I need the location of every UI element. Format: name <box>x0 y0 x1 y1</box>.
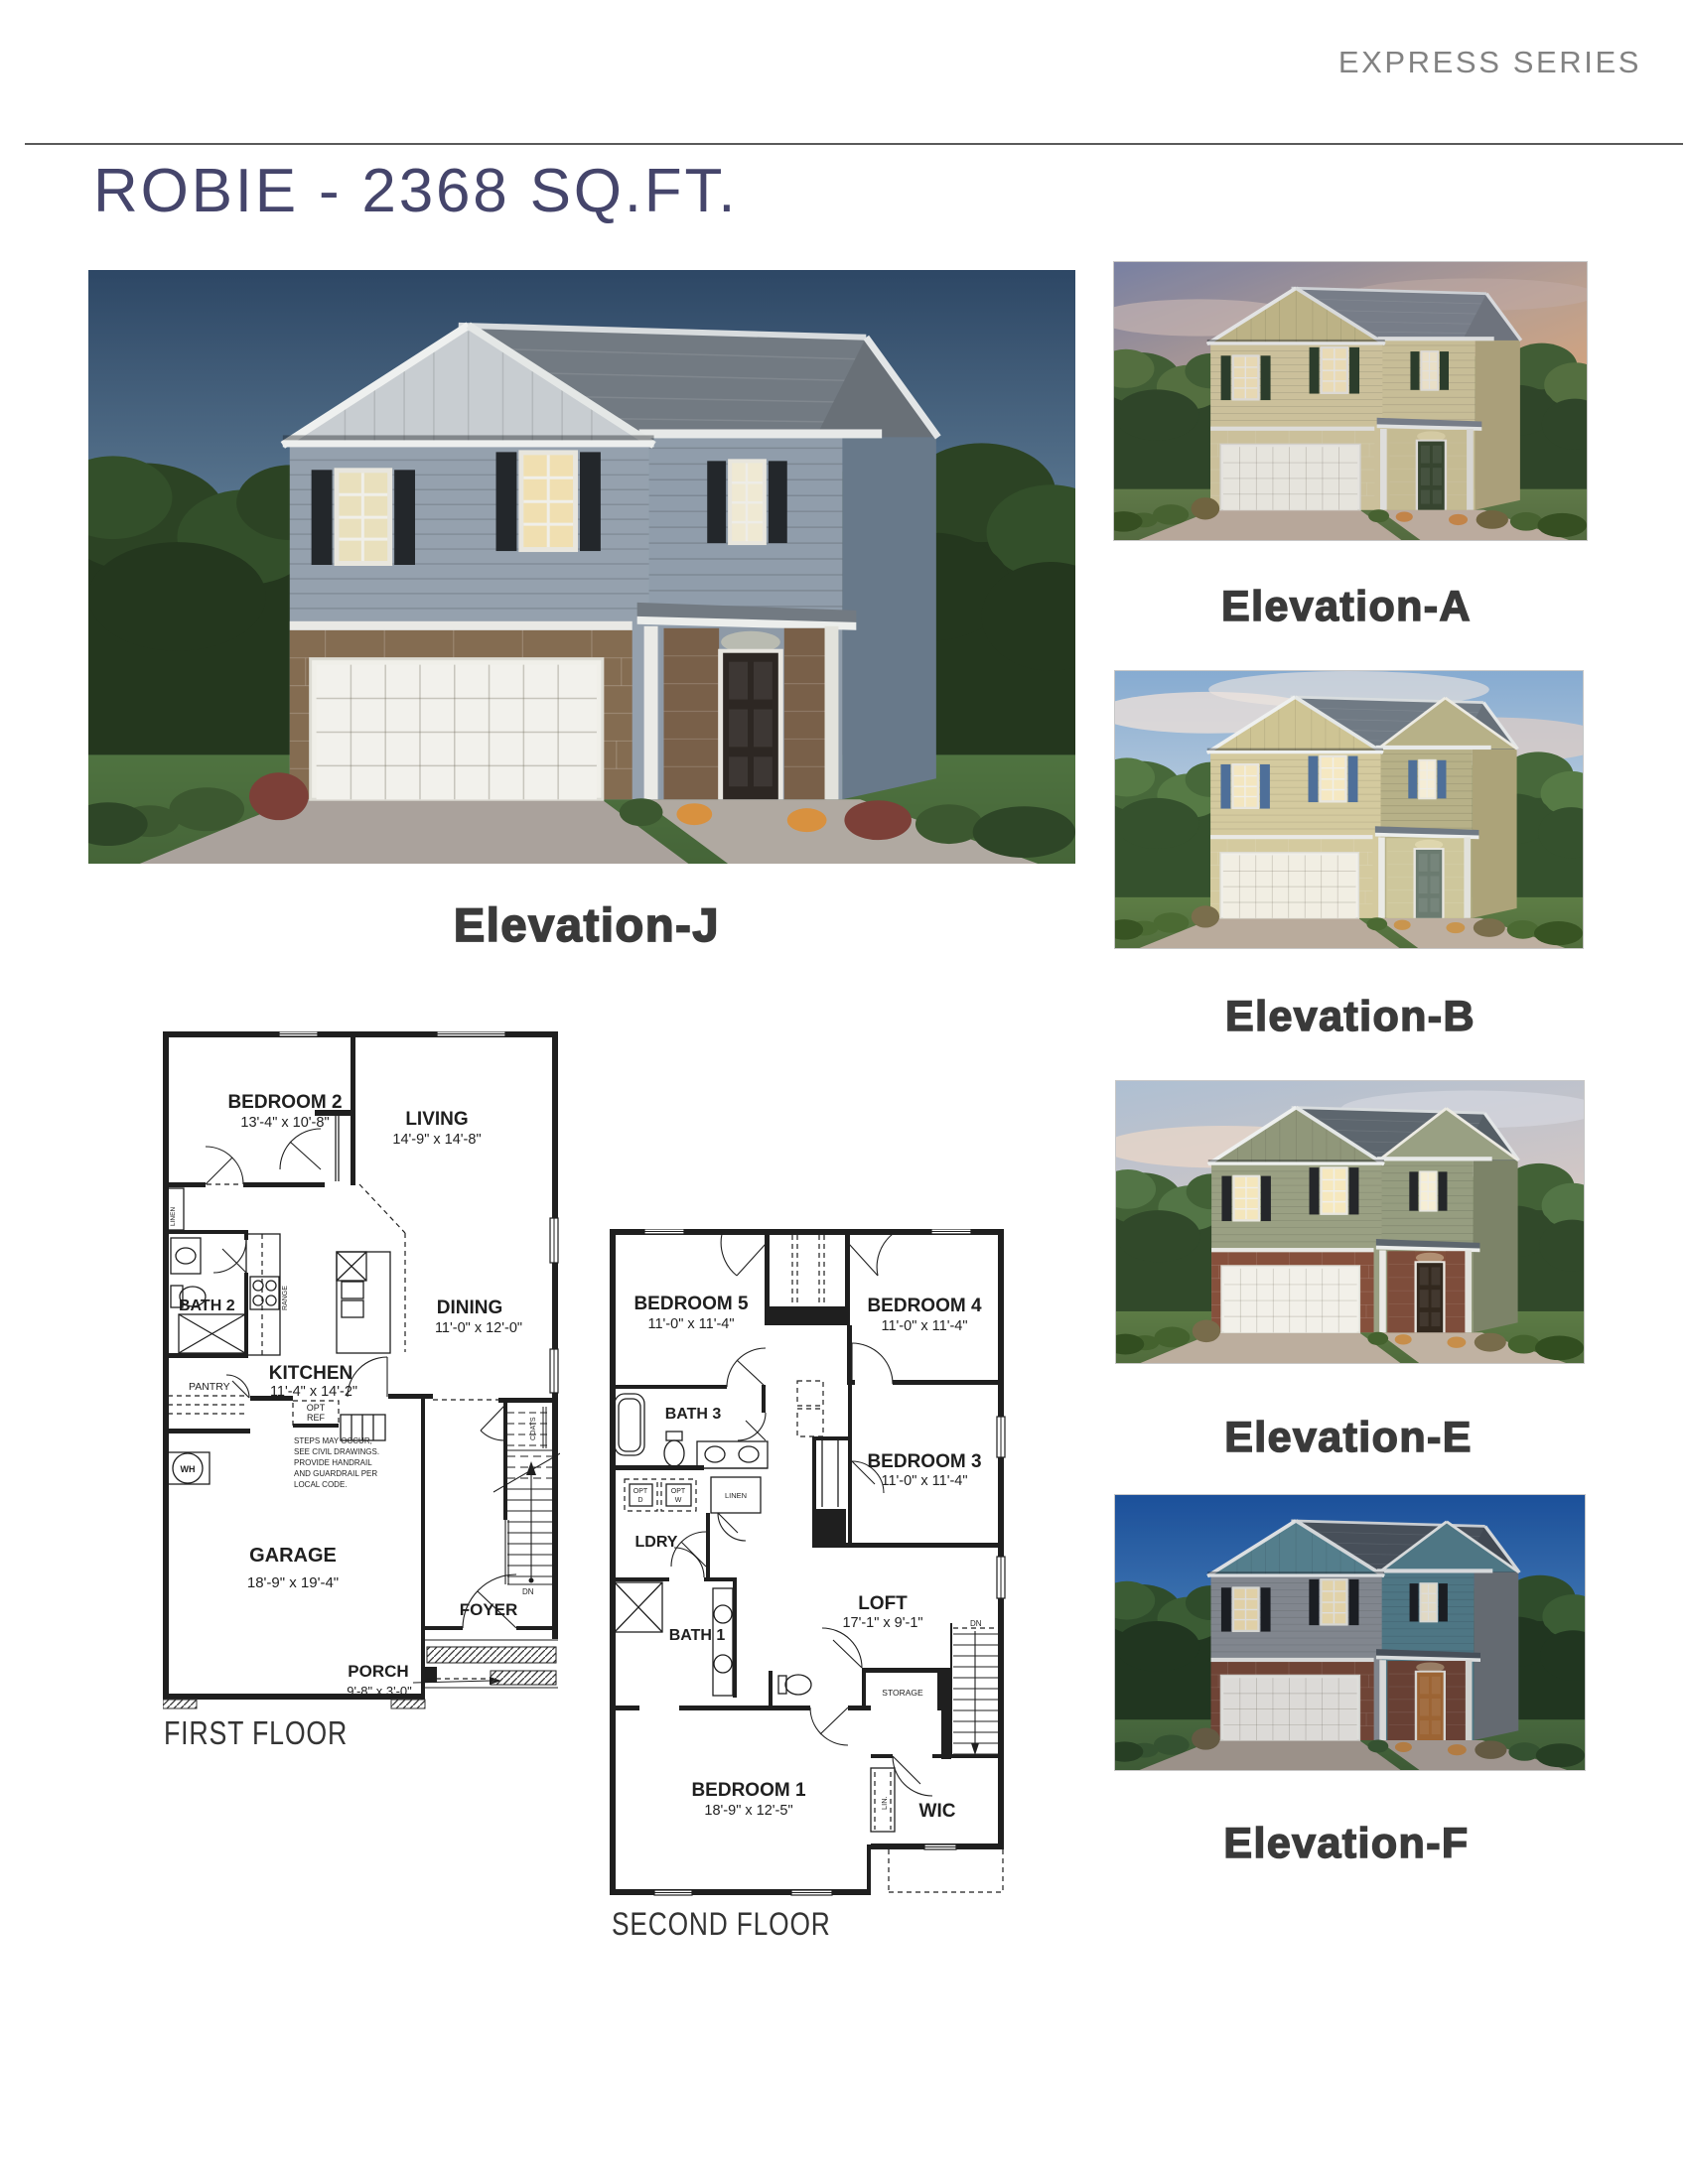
svg-text:BEDROOM 1: BEDROOM 1 <box>691 1780 806 1801</box>
svg-text:11'-4" x 14'-2": 11'-4" x 14'-2" <box>270 1384 357 1400</box>
svg-text:STEPS MAY OCCUR,: STEPS MAY OCCUR, <box>294 1436 372 1445</box>
svg-text:17'-1" x 9'-1": 17'-1" x 9'-1" <box>842 1615 922 1631</box>
svg-text:WIC: WIC <box>919 1801 956 1822</box>
svg-text:11'-0" x 11'-4": 11'-0" x 11'-4" <box>647 1316 734 1332</box>
svg-text:OPT: OPT <box>671 1488 686 1495</box>
svg-text:LDRY: LDRY <box>635 1534 678 1551</box>
svg-text:PANTRY: PANTRY <box>189 1381 230 1393</box>
svg-text:BEDROOM 4: BEDROOM 4 <box>867 1296 982 1316</box>
svg-text:FOYER: FOYER <box>460 1600 518 1619</box>
svg-text:18'-9" x 19'-4": 18'-9" x 19'-4" <box>247 1574 339 1591</box>
svg-text:GARAGE: GARAGE <box>249 1545 337 1567</box>
svg-text:LOCAL CODE.: LOCAL CODE. <box>294 1480 348 1489</box>
svg-text:LOFT: LOFT <box>858 1593 908 1614</box>
svg-text:BEDROOM 5: BEDROOM 5 <box>633 1294 749 1314</box>
svg-text:PORCH: PORCH <box>348 1662 408 1681</box>
svg-text:13'-4" x 10'-8": 13'-4" x 10'-8" <box>240 1115 329 1131</box>
svg-text:SEE CIVIL DRAWINGS.: SEE CIVIL DRAWINGS. <box>294 1447 379 1456</box>
svg-text:LIN.: LIN. <box>880 1796 889 1810</box>
svg-text:BATH 1: BATH 1 <box>669 1627 726 1644</box>
svg-text:COATS: COATS <box>530 1417 537 1440</box>
svg-text:DINING: DINING <box>437 1297 503 1318</box>
svg-text:BATH 2: BATH 2 <box>179 1297 235 1314</box>
svg-text:W: W <box>675 1497 682 1504</box>
svg-text:D: D <box>637 1497 642 1504</box>
svg-text:18'-9" x 12'-5": 18'-9" x 12'-5" <box>704 1803 792 1819</box>
svg-text:DN: DN <box>522 1587 534 1596</box>
svg-text:WH: WH <box>181 1464 196 1474</box>
svg-text:REF: REF <box>307 1413 326 1423</box>
svg-text:LINEN: LINEN <box>170 1207 177 1226</box>
svg-text:LINEN: LINEN <box>725 1491 747 1500</box>
svg-text:PROVIDE HANDRAIL: PROVIDE HANDRAIL <box>294 1458 372 1467</box>
svg-text:9'-8" x 3'-0": 9'-8" x 3'-0" <box>347 1684 412 1699</box>
svg-text:STORAGE: STORAGE <box>882 1688 923 1698</box>
svg-text:RANGE: RANGE <box>282 1286 289 1310</box>
svg-text:OPT: OPT <box>307 1403 326 1413</box>
svg-text:BEDROOM 3: BEDROOM 3 <box>867 1451 981 1472</box>
svg-text:BATH 3: BATH 3 <box>665 1406 722 1423</box>
svg-text:11'-0" x 12'-0": 11'-0" x 12'-0" <box>435 1320 522 1336</box>
svg-text:14'-9" x 14'-8": 14'-9" x 14'-8" <box>392 1132 481 1148</box>
svg-text:BEDROOM 2: BEDROOM 2 <box>227 1092 342 1113</box>
svg-text:LIVING: LIVING <box>405 1109 468 1130</box>
svg-text:11'-0" x 11'-4": 11'-0" x 11'-4" <box>881 1473 967 1489</box>
svg-text:AND GUARDRAIL PER: AND GUARDRAIL PER <box>294 1469 377 1478</box>
svg-text:11'-0" x 11'-4": 11'-0" x 11'-4" <box>881 1318 967 1334</box>
svg-text:DN: DN <box>970 1619 982 1628</box>
svg-text:KITCHEN: KITCHEN <box>269 1363 352 1384</box>
svg-text:OPT: OPT <box>633 1488 648 1495</box>
